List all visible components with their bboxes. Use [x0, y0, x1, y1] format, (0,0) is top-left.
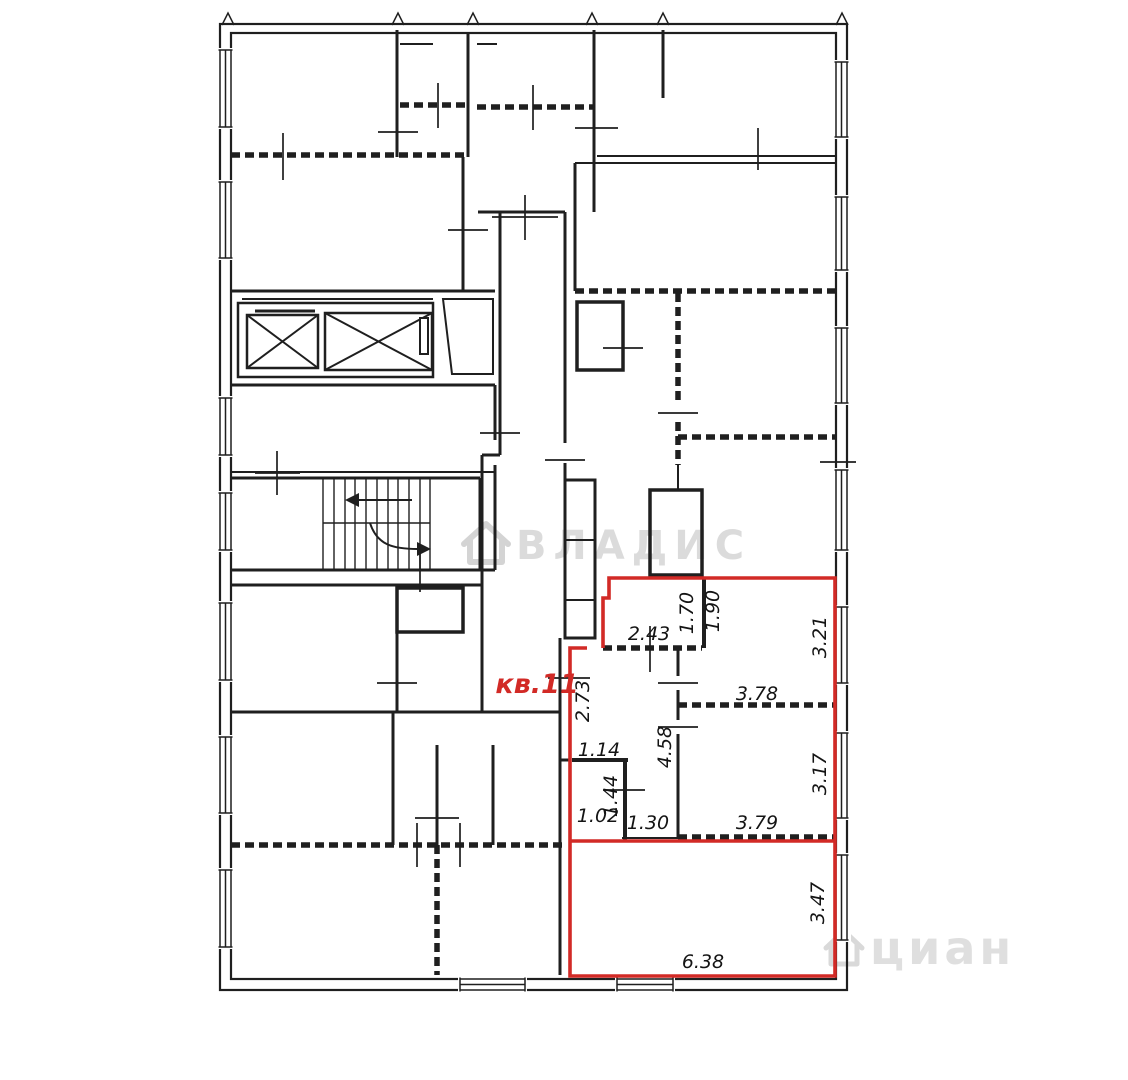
elevator-block [238, 299, 493, 377]
apartment-number-label: кв.11 [495, 669, 578, 700]
dimension-label: 1.30 [627, 812, 669, 834]
dimension-label: 3.17 [809, 753, 831, 795]
dimension-label: 1.90 [702, 590, 724, 632]
house-icon [464, 524, 508, 562]
watermark-center-text: ВЛАДИС [516, 523, 751, 569]
elevator-1-icon [247, 311, 318, 368]
shaft-box [577, 302, 623, 370]
dimension-label: 6.38 [682, 951, 724, 973]
interior-walls [231, 30, 678, 975]
dimension-label: 3.78 [736, 683, 778, 705]
dimension-label: 3.79 [736, 812, 778, 834]
refuse-chute [443, 299, 493, 374]
dimension-label: 4.58 [654, 726, 676, 768]
dimension-label: 1.02 [577, 805, 619, 827]
watermark-center: ВЛАДИС [464, 523, 751, 569]
storage-box [397, 588, 463, 632]
dimension-label: 3.47 [807, 882, 829, 924]
watermark-corner-text: циан [870, 921, 1015, 975]
door-marks [255, 83, 856, 867]
floor-plan: ВЛАДИС циан [0, 0, 1128, 1080]
dimension-label: 1.14 [578, 739, 620, 761]
elevator-2-icon [325, 313, 432, 370]
dimension-label: 3.21 [809, 616, 831, 658]
dimension-label: 1.70 [676, 592, 698, 634]
floor-plan-page: ВЛАДИС циан [0, 0, 1128, 1080]
watermark-corner: циан [826, 921, 1015, 975]
stair-arrow-up [345, 493, 412, 507]
interior-walls-thin [231, 44, 836, 838]
stair-treads [323, 478, 430, 570]
dimension-label: 2.43 [628, 623, 670, 645]
stair-arrow-down [370, 523, 431, 556]
staircase [323, 478, 431, 570]
windows [217, 48, 851, 993]
